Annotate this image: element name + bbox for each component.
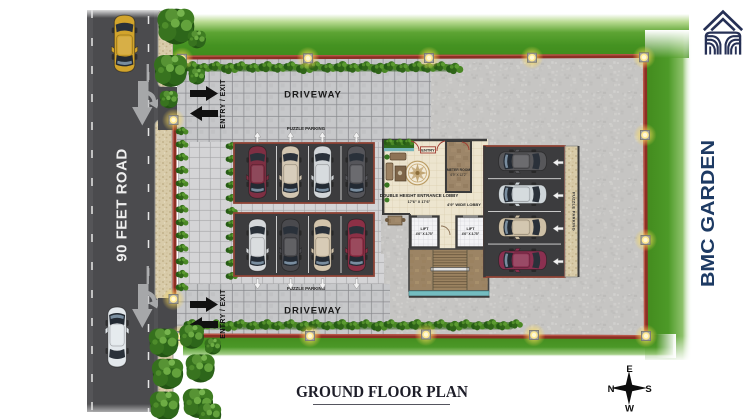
- svg-text:BMC GARDEN: BMC GARDEN: [698, 140, 718, 287]
- svg-text:DOUBLE HEIGHT ENTRANCE LOBBY: DOUBLE HEIGHT ENTRANCE LOBBY: [380, 193, 459, 198]
- svg-text:ENTRY / EXIT: ENTRY / EXIT: [220, 289, 227, 339]
- svg-text:METER ROOM: METER ROOM: [447, 168, 471, 172]
- svg-text:W: W: [625, 404, 634, 415]
- svg-text:PUZZLE PARKING: PUZZLE PARKING: [287, 286, 326, 291]
- svg-text:LIFT: LIFT: [420, 227, 429, 231]
- svg-text:4'6" X 3.75": 4'6" X 3.75": [462, 232, 480, 236]
- svg-text:LIFT: LIFT: [466, 227, 475, 231]
- svg-text:PUZZLE PARKING: PUZZLE PARKING: [287, 126, 326, 131]
- svg-text:PUZZLE PARKING: PUZZLE PARKING: [572, 192, 577, 231]
- svg-text:N: N: [608, 384, 615, 395]
- svg-text:ENTRY / EXIT: ENTRY / EXIT: [220, 79, 227, 129]
- svg-text:4'9" WIDE LOBBY: 4'9" WIDE LOBBY: [447, 202, 481, 207]
- svg-text:17'6" X 17'6": 17'6" X 17'6": [408, 200, 431, 204]
- svg-text:S: S: [645, 384, 651, 395]
- svg-text:E: E: [626, 364, 632, 375]
- svg-text:90 FEET ROAD: 90 FEET ROAD: [114, 148, 131, 262]
- svg-text:DRIVEWAY: DRIVEWAY: [284, 306, 342, 317]
- svg-text:GROUND FLOOR PLAN: GROUND FLOOR PLAN: [296, 382, 469, 401]
- svg-text:DRIVEWAY: DRIVEWAY: [284, 90, 342, 101]
- svg-text:6'9" X 12'2": 6'9" X 12'2": [450, 173, 466, 177]
- svg-text:ENTRY: ENTRY: [421, 148, 435, 153]
- svg-text:4'6" X 3.75": 4'6" X 3.75": [416, 232, 434, 236]
